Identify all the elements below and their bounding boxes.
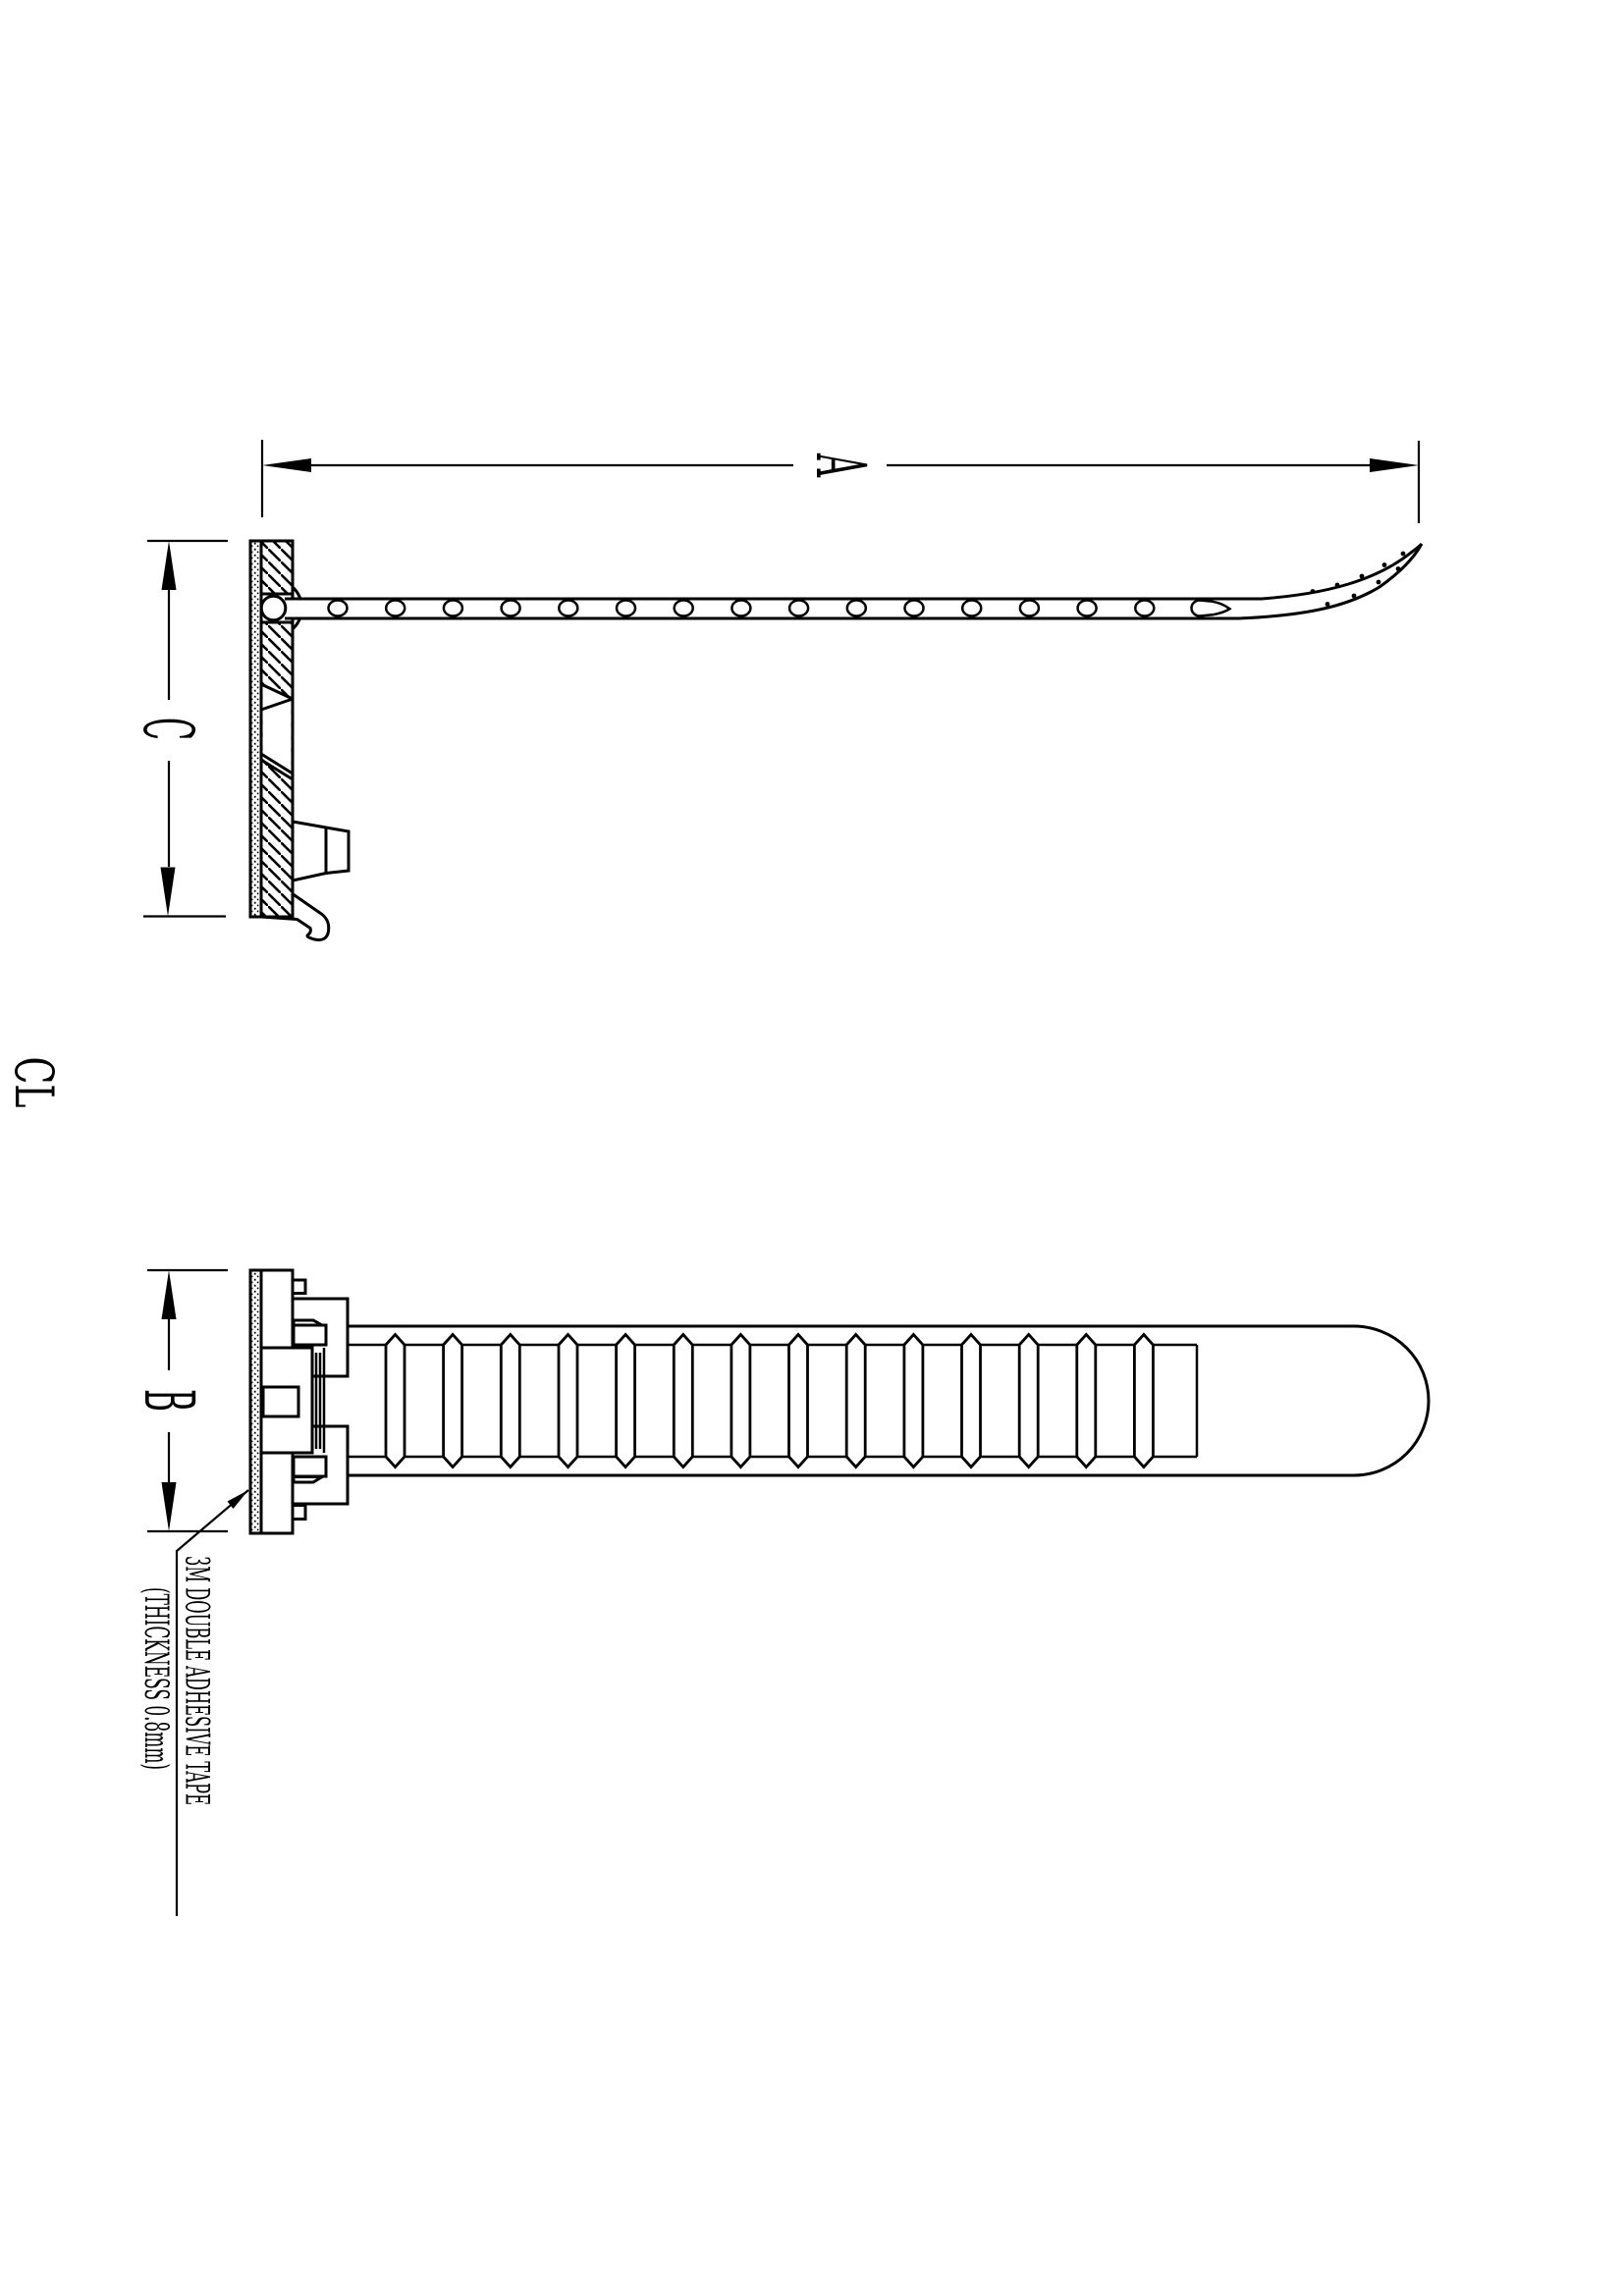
cable-tie-mount-drawing: A C CL bbox=[0, 0, 1623, 2296]
serration-tick bbox=[1396, 566, 1401, 571]
strap-rib bbox=[1019, 1335, 1038, 1468]
centerline-label: CL bbox=[3, 1057, 65, 1108]
strap-rib bbox=[1134, 1335, 1153, 1468]
strap-rib bbox=[674, 1335, 692, 1468]
serration-tick bbox=[1352, 594, 1357, 599]
adhesive-tape-layer-plan bbox=[250, 1270, 261, 1533]
strap-rib bbox=[789, 1335, 808, 1468]
strap-rib bbox=[904, 1335, 923, 1468]
center-plug bbox=[261, 1348, 312, 1453]
strap-rib bbox=[386, 1335, 405, 1468]
serration-tick bbox=[1325, 602, 1330, 607]
tape-note-line1: 3M DOUBLE ADHESIVE TAPE bbox=[178, 1556, 217, 1805]
dimension-c-label: C bbox=[128, 718, 208, 740]
page-background bbox=[0, 0, 1623, 2296]
serration-tick bbox=[1377, 580, 1381, 585]
serration-tick bbox=[1360, 574, 1365, 579]
drawing-sheet: A C CL bbox=[0, 0, 1623, 2296]
adhesive-tape-layer-side bbox=[250, 541, 261, 917]
strap-pin bbox=[261, 596, 286, 620]
strap-rib bbox=[559, 1335, 577, 1468]
strap-rib bbox=[617, 1335, 635, 1468]
strap-rib bbox=[501, 1335, 519, 1468]
dimension-a-label: A bbox=[800, 454, 881, 478]
serration-tick bbox=[1382, 562, 1387, 567]
slot-wall-lines bbox=[316, 1348, 324, 1453]
strap-rib bbox=[444, 1335, 462, 1468]
tape-note-line2: (THICKNESS 0.8mm) bbox=[136, 1587, 176, 1770]
serration-tick bbox=[1401, 552, 1406, 557]
mounting-pawl bbox=[293, 822, 349, 881]
serration-tick bbox=[1335, 583, 1340, 588]
dimension-b-label: B bbox=[129, 1389, 209, 1412]
serration-tick bbox=[1311, 589, 1316, 594]
strap-rib bbox=[1077, 1335, 1096, 1468]
strap-rib bbox=[962, 1335, 981, 1468]
strap-rib bbox=[846, 1335, 865, 1468]
strap-rib bbox=[731, 1335, 750, 1468]
